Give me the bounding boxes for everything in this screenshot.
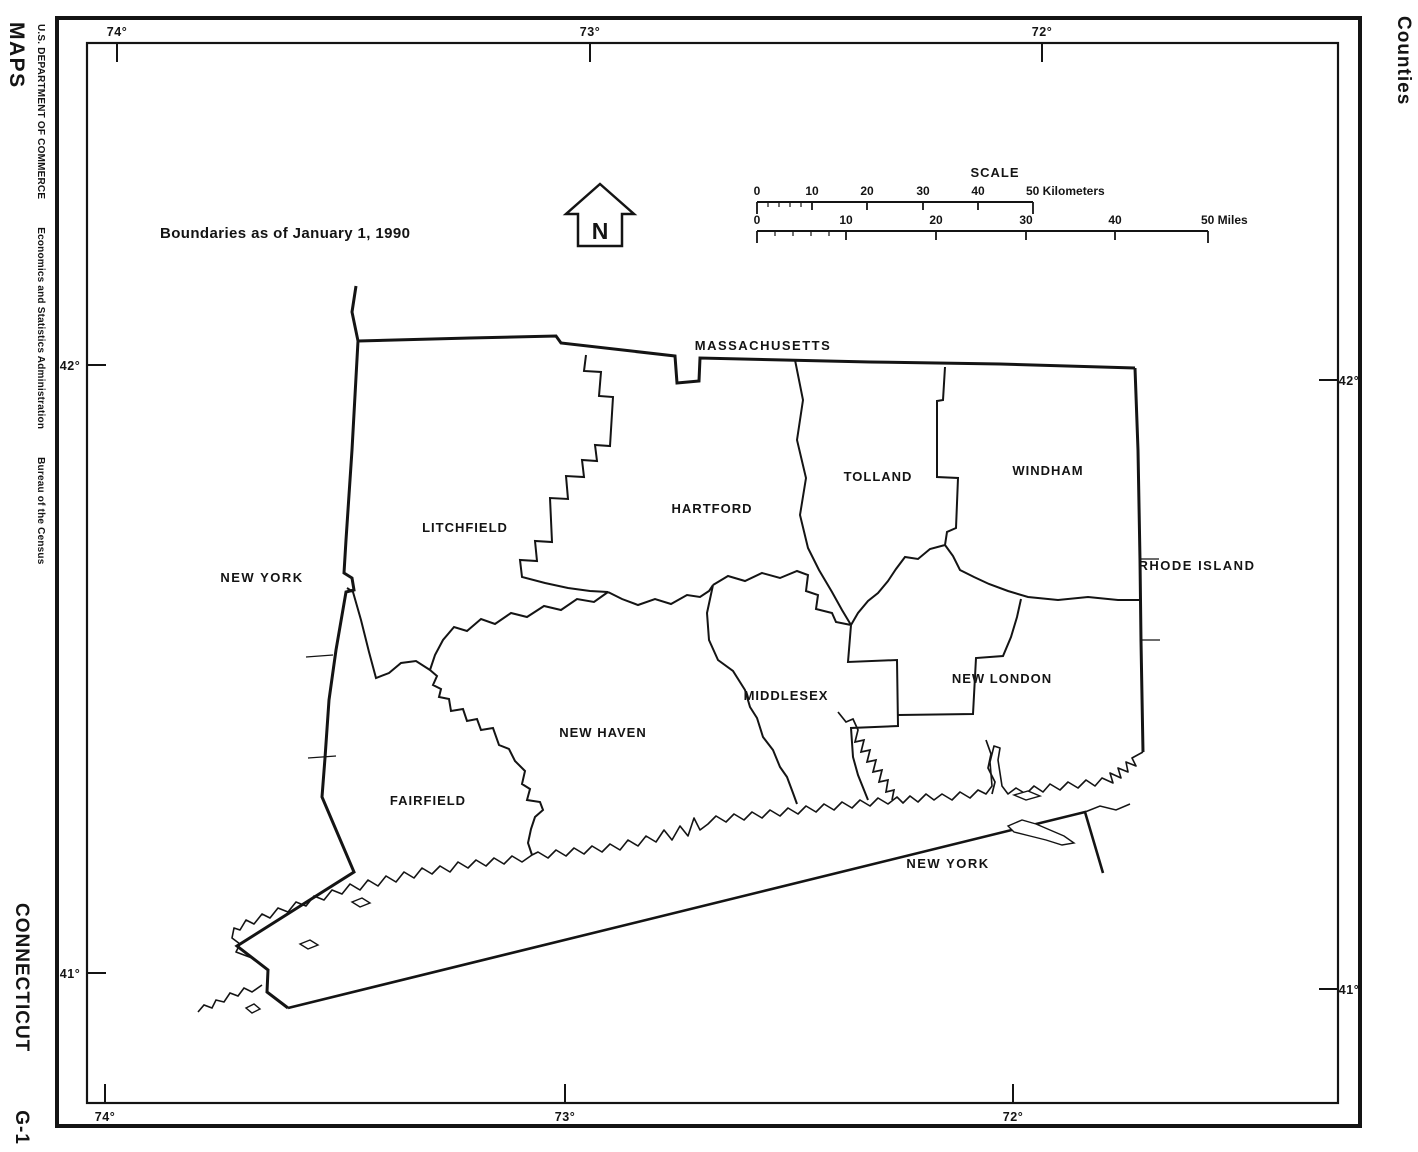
lat-label-42-right: 42°	[1339, 374, 1359, 388]
scale-km-10: 10	[805, 184, 819, 198]
lon-label-73-bottom: 73°	[555, 1110, 575, 1124]
boundary-note: Boundaries as of January 1, 1990	[160, 225, 410, 242]
scale-km-30: 30	[916, 184, 930, 198]
label-new-york-west: NEW YORK	[220, 570, 303, 585]
long-island-sound-shoreline	[232, 746, 1143, 968]
series-title: MAPS	[4, 22, 28, 89]
lon-label-74-top: 74°	[107, 25, 127, 39]
scale-bar-miles-major-ticks	[757, 231, 1208, 243]
scale-km-20: 20	[860, 184, 874, 198]
department-name: U.S. DEPARTMENT OF COMMERCE	[35, 24, 46, 199]
scale-title: SCALE	[970, 165, 1019, 180]
label-new-london: NEW LONDON	[952, 671, 1052, 686]
administration-name: Economics and Statistics Administration	[35, 227, 46, 429]
map-sheet: MAPS U.S. DEPARTMENT OF COMMERCEEconomic…	[0, 0, 1418, 1152]
scale-mi-10: 10	[839, 213, 853, 227]
agency-line: U.S. DEPARTMENT OF COMMERCEEconomics and…	[35, 24, 46, 593]
sheet-id: CONNECTICUTG-1	[10, 903, 32, 1145]
label-windham: WINDHAM	[1012, 463, 1083, 478]
connecticut-and-thames-rivers	[838, 712, 995, 800]
scale-mi-50: 50 Miles	[1201, 213, 1248, 227]
water-boundary-spur	[1085, 804, 1130, 812]
lon-label-72-top: 72°	[1032, 25, 1052, 39]
scale-km-0: 0	[754, 184, 761, 198]
sheet-title: Counties	[1392, 16, 1414, 105]
label-fairfield: FAIRFIELD	[390, 793, 466, 808]
label-rhode-island: RHODE ISLAND	[1139, 558, 1256, 573]
scale-km-50: 50 Kilometers	[1026, 184, 1105, 198]
scale-bar-km-major-ticks	[757, 202, 1033, 214]
scale-km-40: 40	[971, 184, 985, 198]
label-hartford: HARTFORD	[672, 501, 753, 516]
scale-mi-0: 0	[754, 213, 761, 227]
bureau-name: Bureau of the Census	[35, 457, 46, 564]
new-york-water-boundary	[288, 812, 1103, 1008]
lat-label-42-left: 42°	[60, 359, 80, 373]
label-litchfield: LITCHFIELD	[422, 520, 508, 535]
label-new-york-sound: NEW YORK	[906, 856, 989, 871]
lon-label-72-bottom: 72°	[1003, 1110, 1023, 1124]
county-boundaries	[347, 355, 1140, 855]
lat-label-41-left: 41°	[60, 967, 80, 981]
lat-label-41-right: 41°	[1339, 983, 1359, 997]
scale-mi-20: 20	[929, 213, 943, 227]
label-new-haven: NEW HAVEN	[559, 725, 646, 740]
scale-mi-30: 30	[1019, 213, 1033, 227]
connecticut-county-map: 74° 73° 72° 74° 73° 72° 42° 41° 42° 41° …	[0, 0, 1418, 1152]
north-arrow-letter: N	[592, 218, 609, 244]
scale-mi-40: 40	[1108, 213, 1122, 227]
label-massachusetts: MASSACHUSETTS	[695, 338, 832, 353]
lon-label-74-bottom: 74°	[95, 1110, 115, 1124]
lon-label-73-top: 73°	[580, 25, 600, 39]
label-middlesex: MIDDLESEX	[744, 688, 829, 703]
islands	[246, 791, 1074, 1013]
sheet-code: G-1	[11, 1110, 32, 1145]
state-name: CONNECTICUT	[11, 903, 32, 1052]
label-tolland: TOLLAND	[844, 469, 913, 484]
